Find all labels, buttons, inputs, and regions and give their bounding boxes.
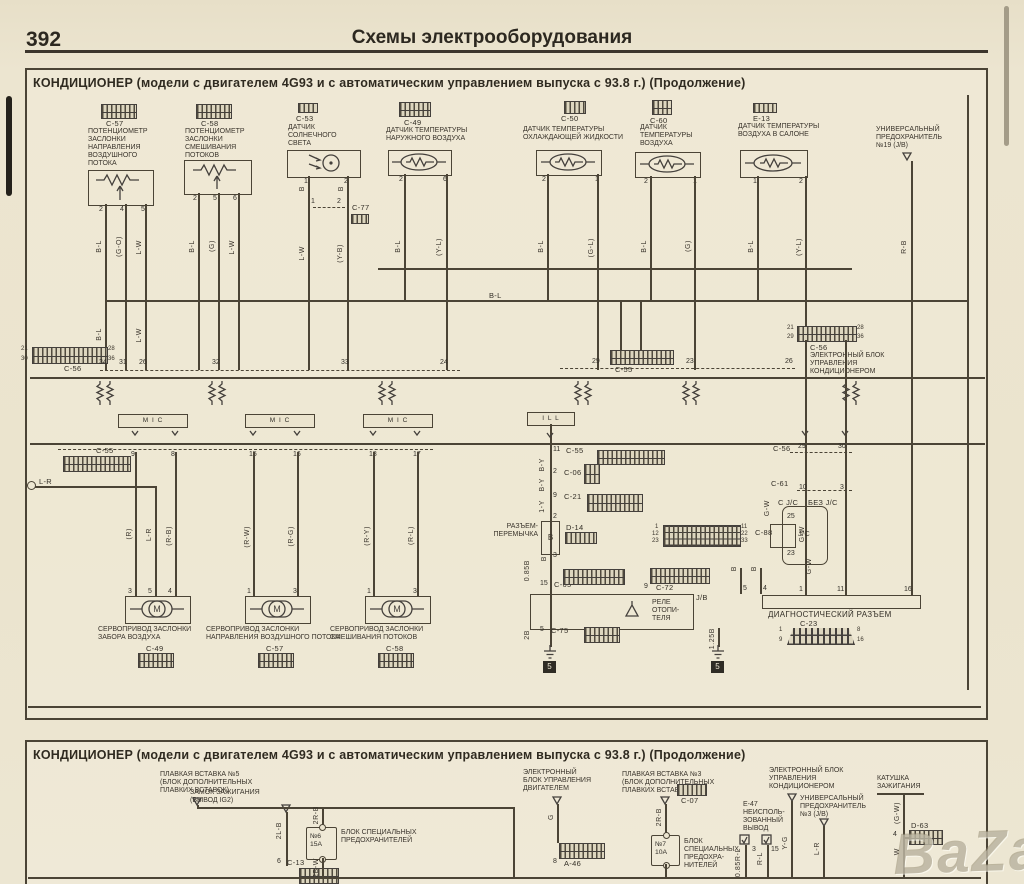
wire-color-label: B bbox=[541, 556, 548, 561]
pin-number: 29 bbox=[592, 358, 600, 365]
component-label: ПОТЕНЦИОМЕТР ЗАСЛОНКИ СМЕШИВАНИЯ ПОТОКОВ bbox=[185, 128, 255, 160]
wire-color-label: G-W bbox=[806, 558, 813, 574]
connector-pin-number: 28 bbox=[857, 325, 864, 331]
thermistor-icon bbox=[635, 152, 699, 176]
wire-color-label: B-L bbox=[538, 240, 545, 253]
connector-id: C-61 bbox=[771, 479, 788, 488]
wire-color-label: (R-B) bbox=[166, 526, 173, 546]
resistor-icon bbox=[376, 381, 400, 409]
connector-pin-number: 28 bbox=[108, 346, 115, 352]
connector-id: E-13 bbox=[753, 114, 770, 123]
pin-number: 1 bbox=[367, 588, 371, 595]
wire bbox=[767, 845, 769, 877]
wire-color-label: B bbox=[751, 566, 758, 571]
connector-icon bbox=[564, 101, 586, 114]
wire-color-label: 0.85R-L bbox=[735, 848, 742, 877]
wire bbox=[145, 204, 147, 370]
connector-pin-number: 1 bbox=[779, 627, 782, 633]
wire bbox=[557, 804, 559, 843]
connector-id: C-58 bbox=[386, 644, 403, 653]
diagnostic-connector-box bbox=[762, 595, 921, 609]
wire bbox=[197, 807, 513, 809]
connector-icon bbox=[101, 104, 137, 119]
component-label: ДАТЧИК ТЕМПЕРАТУРЫ ОХЛАЖДАЮЩЕЙ ЖИДКОСТИ bbox=[523, 126, 633, 142]
wire-color-label: 1-Y bbox=[539, 500, 546, 513]
wire-color-label: B-L bbox=[748, 240, 755, 253]
connector-pin-number: 22 bbox=[741, 531, 748, 537]
wire bbox=[417, 452, 419, 596]
watermark: BaZar bbox=[892, 815, 1024, 884]
jumper-label: РАЗЪЕМ- ПЕРЕМЫЧКА bbox=[478, 523, 538, 539]
wire bbox=[297, 452, 299, 596]
connector-icon bbox=[63, 456, 131, 472]
relay-icon bbox=[620, 600, 644, 620]
ground-icon bbox=[542, 645, 558, 661]
pin-number: 16 bbox=[904, 586, 912, 593]
connector-pin-number: 21 bbox=[787, 325, 794, 331]
wire-color-label: L-W bbox=[299, 246, 306, 261]
motor-icon: M bbox=[365, 596, 429, 622]
pin-number: 34 bbox=[99, 359, 107, 366]
pin-number: 2 bbox=[542, 176, 546, 183]
wire-color-label: (R-Y) bbox=[364, 526, 371, 546]
component-label: ДАТЧИК ТЕМПЕРАТУРЫ НАРУЖНОГО ВОЗДУХА bbox=[386, 127, 486, 143]
wire-color-label: B bbox=[299, 186, 306, 191]
connector-icon bbox=[753, 103, 777, 113]
connector-id: C-72 bbox=[656, 583, 673, 592]
jumper-box: В bbox=[541, 521, 560, 555]
connector-icon bbox=[138, 653, 174, 668]
connector-id: A-46 bbox=[564, 859, 581, 868]
wire-color-label: L-R bbox=[39, 477, 52, 486]
wire-color-label: 2L-B bbox=[276, 822, 283, 839]
potentiometer-icon bbox=[88, 170, 152, 204]
connector-boundary-dashed bbox=[560, 368, 795, 369]
connector-pin-number: 21 bbox=[21, 346, 28, 352]
wire-color-label: (Y-L) bbox=[436, 238, 443, 256]
connector-pin-number: 9 bbox=[779, 637, 782, 643]
junction-block-label: J/B bbox=[696, 593, 708, 602]
wire-color-label: L-W bbox=[136, 328, 143, 343]
connector-pin-number: 11 bbox=[741, 524, 747, 530]
wire bbox=[823, 826, 825, 877]
pin-number: 29 bbox=[798, 443, 806, 450]
connector-id: C-75 bbox=[551, 626, 568, 635]
pin-number: 8 bbox=[553, 858, 557, 865]
connector-pin-number: 36 bbox=[108, 356, 115, 362]
connector-id: D-14 bbox=[566, 523, 583, 532]
ground-icon bbox=[710, 645, 726, 661]
connector-boundary-dashed bbox=[58, 449, 433, 450]
pin-number: 15 bbox=[540, 580, 548, 587]
wire-color-label: G-W bbox=[799, 526, 806, 542]
wire-color-label: B-L bbox=[641, 240, 648, 253]
pin-number: 11 bbox=[837, 586, 844, 593]
connector-id: C-53 bbox=[296, 114, 313, 123]
label-underline bbox=[877, 793, 924, 795]
pin-number: 31 bbox=[119, 359, 127, 366]
wire bbox=[308, 176, 310, 370]
connector-icon bbox=[298, 103, 318, 113]
pin-number: 9 bbox=[553, 492, 557, 499]
wire-color-label: B-L bbox=[96, 328, 103, 341]
pin-number: 3 bbox=[553, 552, 557, 559]
component-label: СЕРВОПРИВОД ЗАСЛОНКИ ЗАБОРА ВОЗДУХА bbox=[98, 626, 223, 642]
connector-icon bbox=[378, 653, 414, 668]
wire bbox=[446, 174, 448, 370]
connector-icon bbox=[563, 569, 625, 585]
wire-color-label: Y-G bbox=[782, 836, 789, 850]
pin-number: 3 bbox=[293, 588, 297, 595]
connector-icon bbox=[258, 653, 294, 668]
connector-id: C-13 bbox=[287, 858, 304, 867]
connector-id: C-49 bbox=[146, 644, 163, 653]
wire bbox=[373, 452, 375, 596]
thermistor-icon bbox=[740, 150, 806, 176]
fuse-number: №7 bbox=[655, 841, 666, 848]
pin-number: 2 bbox=[553, 513, 557, 520]
connector-pin-number: 8 bbox=[857, 627, 860, 633]
connector-pin-number: 33 bbox=[741, 538, 748, 544]
connector-id: C-56 bbox=[810, 343, 827, 352]
pin-number: 3 bbox=[752, 846, 756, 853]
checkbox-icon bbox=[739, 834, 750, 845]
pin-number: 32 bbox=[212, 359, 220, 366]
resistor-icon bbox=[94, 381, 118, 409]
pin-number: 1 bbox=[247, 588, 251, 595]
component-label: E-47 НЕИСПОЛЬ- ЗОВАННЫЙ ВЫВОД bbox=[743, 801, 803, 833]
pin-number: 5 bbox=[540, 626, 544, 633]
fuse-box: №6 15A bbox=[306, 827, 337, 860]
connector-id: C-77 bbox=[352, 203, 369, 212]
connector-boundary-dashed bbox=[790, 452, 852, 453]
wire bbox=[745, 845, 747, 877]
component-label: ЭЛЕКТРОННЫЙ БЛОК УПРАВЛЕНИЯ КОНДИЦИОНЕРО… bbox=[769, 767, 859, 791]
motor-icon: M bbox=[245, 596, 309, 622]
connector-icon bbox=[610, 350, 674, 365]
wire bbox=[620, 302, 622, 351]
wire-color-label: B-L bbox=[395, 240, 402, 253]
mic-block: M I C bbox=[245, 414, 315, 428]
wire bbox=[513, 807, 515, 877]
relay-label: РЕЛЕ ОТОПИ- ТЕЛЯ bbox=[652, 599, 692, 623]
connector-pin-number: 12 bbox=[652, 531, 659, 537]
wire bbox=[238, 193, 240, 370]
connector-icon bbox=[584, 464, 600, 484]
connector-id: C-50 bbox=[561, 114, 578, 123]
arrow-down-icon bbox=[171, 430, 179, 436]
component-label: ЭЛЕКТРОННЫЙ БЛОК УПРАВЛЕНИЯ КОНДИЦИОНЕРО… bbox=[810, 352, 900, 376]
connector-icon bbox=[597, 450, 665, 465]
connector-id: C-56 bbox=[64, 364, 81, 373]
connector-icon bbox=[399, 102, 431, 117]
wire-color-label: B-L bbox=[189, 240, 196, 253]
resistor-icon bbox=[840, 381, 864, 409]
wire bbox=[198, 193, 200, 370]
wire-color-label: (G) bbox=[685, 240, 692, 252]
connector-icon bbox=[565, 532, 597, 544]
connector-id: C-56 bbox=[773, 444, 790, 453]
wire-color-label: (R-W) bbox=[244, 526, 251, 548]
wire bbox=[135, 452, 137, 596]
pin-number: 2 bbox=[553, 468, 557, 475]
bus-label: B-L bbox=[489, 291, 502, 300]
connector-icon bbox=[196, 104, 232, 119]
wire bbox=[640, 302, 642, 351]
pin-number: 24 bbox=[440, 359, 448, 366]
arrow-down-icon bbox=[413, 430, 421, 436]
ecu-boundary-line bbox=[30, 377, 985, 379]
mic-block: M I C bbox=[118, 414, 188, 428]
ground-ref-badge: 5 bbox=[543, 661, 556, 673]
joint-connector-box bbox=[770, 524, 796, 548]
wire bbox=[791, 801, 793, 877]
wire-color-label: 2B-W bbox=[313, 858, 320, 878]
motor-letter: M bbox=[273, 604, 281, 614]
pin-number: 9 bbox=[644, 583, 648, 590]
pin-number: 26 bbox=[785, 358, 793, 365]
wire bbox=[155, 486, 157, 596]
wire bbox=[322, 858, 324, 877]
connector-icon bbox=[663, 525, 741, 547]
wire-color-label: G-W bbox=[764, 500, 771, 516]
diagram-title-top: КОНДИЦИОНЕР (модели с двигателем 4G93 и … bbox=[33, 76, 745, 90]
pin-number: 23 bbox=[686, 358, 694, 365]
component-label: ДАТЧИК СОЛНЕЧНОГО СВЕТА bbox=[288, 124, 354, 148]
connector-id: C-49 bbox=[404, 118, 421, 127]
wire-color-label: 2B bbox=[524, 630, 531, 640]
pin-number: 26 bbox=[139, 359, 147, 366]
connector-pin-number: 16 bbox=[857, 637, 864, 643]
page-title: Схемы электрооборудования bbox=[0, 27, 984, 49]
wire bbox=[125, 204, 127, 370]
sun-sensor-icon bbox=[287, 150, 359, 176]
wire-dashed bbox=[313, 207, 345, 208]
wire bbox=[757, 176, 759, 301]
wire bbox=[694, 176, 696, 370]
motor-letter: M bbox=[153, 604, 161, 614]
pin-number: 3 bbox=[128, 588, 132, 595]
wire-color-label: L-R bbox=[814, 842, 821, 855]
wire bbox=[547, 174, 549, 301]
pin-number: 23 bbox=[787, 550, 795, 557]
connector-pin-number: 29 bbox=[787, 334, 794, 340]
connector-icon bbox=[787, 628, 855, 645]
wire-color-label: L-W bbox=[136, 240, 143, 255]
pin-number: 25 bbox=[787, 513, 795, 520]
wire bbox=[650, 176, 652, 301]
connector-pin-number: 1 bbox=[655, 524, 658, 530]
arrow-down-icon bbox=[293, 430, 301, 436]
pin-number: 2 bbox=[337, 198, 341, 205]
connector-id: C-57 bbox=[266, 644, 283, 653]
connector-id: C-55 bbox=[96, 446, 113, 455]
thermistor-icon bbox=[536, 150, 600, 174]
pin-number: 4 bbox=[763, 585, 767, 592]
connector-icon bbox=[559, 843, 605, 859]
wire-color-label: B-Y bbox=[539, 458, 546, 471]
wire bbox=[967, 95, 969, 690]
wire-color-label: R-L bbox=[757, 852, 764, 865]
pin-number: 5 bbox=[213, 195, 217, 202]
wire bbox=[347, 176, 349, 370]
wire-color-label: (Y-B) bbox=[337, 244, 344, 263]
pin-number: 1 bbox=[311, 198, 315, 205]
checkbox-icon bbox=[761, 834, 772, 845]
scan-edge-artifact bbox=[6, 96, 12, 196]
pin-number: 5 bbox=[743, 585, 747, 592]
connector-pin-number: 23 bbox=[652, 538, 659, 544]
connector-icon bbox=[584, 627, 620, 643]
component-label: ЭЛЕКТРОННЫЙ БЛОК УПРАВЛЕНИЯ ДВИГАТЕЛЕМ bbox=[523, 769, 613, 793]
resistor-icon bbox=[680, 381, 704, 409]
pin-number: 2 bbox=[399, 176, 403, 183]
pin-number: 3 bbox=[413, 588, 417, 595]
wire-color-label: B bbox=[731, 566, 738, 571]
connector-icon bbox=[587, 494, 643, 512]
wire-color-label: (R) bbox=[126, 528, 133, 540]
wire-color-label: B-L bbox=[96, 240, 103, 253]
wire bbox=[105, 204, 107, 370]
wire bbox=[740, 568, 742, 594]
connector-boundary-dashed bbox=[797, 490, 852, 491]
wire-color-label: L-W bbox=[229, 240, 236, 255]
fuse-box: №7 10A bbox=[651, 835, 680, 866]
connector-icon bbox=[650, 568, 710, 584]
connector-pin-number: 36 bbox=[857, 334, 864, 340]
connector-id: C-58 bbox=[201, 119, 218, 128]
wire-color-label: (R-G) bbox=[288, 526, 295, 547]
fuse-label: УНИВЕРСАЛЬНЫЙ ПРЕДОХРАНИТЕЛЬ №19 (J/B) bbox=[876, 126, 971, 150]
component-label: ПЛАВКАЯ ВСТАВКА №5 (БЛОК ДОПОЛНИТЕЛЬНЫХ … bbox=[160, 771, 270, 795]
wire bbox=[253, 452, 255, 596]
wire bbox=[597, 174, 599, 370]
pin-number: 1 bbox=[799, 586, 803, 593]
bus-wire bbox=[105, 300, 967, 302]
arrow-down-icon bbox=[131, 430, 139, 436]
pin-number: 2 bbox=[193, 195, 197, 202]
scanned-wiring-diagram-page: 392 Схемы электрооборудования КОНДИЦИОНЕ… bbox=[0, 0, 1024, 884]
wire bbox=[665, 864, 667, 877]
connector-pin-number: 30 bbox=[21, 356, 28, 362]
wire-color-label: R-B bbox=[901, 240, 908, 254]
component-label: ДАТЧИК ТЕМПЕРАТУРЫ ВОЗДУХА В САЛОНЕ bbox=[738, 123, 838, 139]
component-label: УНИВЕРСАЛЬНЫЙ ПРЕДОХРАНИТЕЛЬ №3 (J/B) bbox=[800, 795, 890, 819]
ground-ref-badge: 5 bbox=[711, 661, 724, 673]
connector-icon bbox=[677, 784, 707, 796]
scan-edge-artifact bbox=[1004, 6, 1009, 146]
wire bbox=[218, 193, 220, 370]
pin-number: 15 bbox=[771, 846, 779, 853]
connector-icon bbox=[351, 214, 369, 224]
wire bbox=[665, 804, 667, 835]
component-label: КАТУШКА ЗАЖИГАНИЯ bbox=[877, 775, 937, 791]
connector-icon bbox=[652, 100, 672, 115]
fuse-number: №6 bbox=[310, 833, 321, 840]
component-label: ДАТЧИК ТЕМПЕРАТУРЫ ВОЗДУХА bbox=[640, 124, 700, 148]
wire-color-label: (G-O) bbox=[116, 236, 123, 257]
pin-number: 5 bbox=[148, 588, 152, 595]
wire bbox=[28, 877, 981, 879]
component-label: БЛОК СПЕЦИАЛЬНЫХ ПРЕДОХРАНИТЕЛЕЙ bbox=[341, 829, 436, 845]
pin-number: 6 bbox=[277, 858, 281, 865]
panel-inner-rule bbox=[28, 706, 981, 708]
pin-number: 33 bbox=[341, 359, 349, 366]
wire-color-label: L-R bbox=[146, 528, 153, 541]
connector-boundary-dashed bbox=[100, 370, 460, 371]
connector-id: C-55 bbox=[615, 365, 632, 374]
connector-id: C-06 bbox=[564, 468, 581, 477]
pin-number: 30 bbox=[838, 443, 846, 450]
wire-color-label: B-Y bbox=[539, 478, 546, 491]
diagnostic-connector-label: ДИАГНОСТИЧЕСКИЙ РАЗЪЕМ bbox=[768, 610, 892, 619]
bus-wire bbox=[378, 268, 852, 270]
arrow-down-icon bbox=[546, 432, 554, 438]
pin-number: 2 bbox=[799, 178, 803, 185]
connector-id: С-23 bbox=[800, 619, 817, 628]
pin-number: 11 bbox=[553, 446, 560, 453]
wire bbox=[760, 568, 762, 594]
wire bbox=[35, 486, 155, 488]
resistor-icon bbox=[572, 381, 596, 409]
pin-number: 4 bbox=[168, 588, 172, 595]
wire bbox=[175, 452, 177, 596]
pin-number: 4 bbox=[120, 206, 124, 213]
wire bbox=[845, 340, 847, 596]
wire-color-label: G bbox=[548, 814, 555, 820]
connector-id: C-57 bbox=[106, 119, 123, 128]
thermistor-icon bbox=[388, 150, 450, 174]
motor-letter: M bbox=[393, 604, 401, 614]
motor-icon: M bbox=[125, 596, 189, 622]
wire-color-label: 0.85B bbox=[524, 560, 531, 581]
wire-color-label: B bbox=[338, 186, 345, 191]
wire bbox=[404, 174, 406, 301]
wire-color-label: (G) bbox=[209, 240, 216, 252]
wire bbox=[805, 176, 807, 327]
component-label: СЕРВОПРИВОД ЗАСЛОНКИ СМЕШИВАНИЯ ПОТОКОВ bbox=[330, 626, 470, 642]
connector-icon bbox=[32, 347, 108, 364]
connector-id: C-21 bbox=[564, 492, 581, 501]
arrow-down-icon bbox=[369, 430, 377, 436]
pin-number: 2 bbox=[644, 178, 648, 185]
wire-color-label: (G-L) bbox=[588, 238, 595, 257]
pin-number: 2 bbox=[99, 206, 103, 213]
header-rule bbox=[25, 50, 988, 53]
fuse-rating: 10A bbox=[655, 849, 667, 856]
wire-color-label: 2R-B bbox=[313, 806, 320, 824]
arrow-down-icon bbox=[249, 430, 257, 436]
wire-color-label: (Y-L) bbox=[796, 238, 803, 256]
mic-block: M I C bbox=[363, 414, 433, 428]
wire-color-label: 2R-B bbox=[656, 808, 663, 826]
component-label: ПОТЕНЦИОМЕТР ЗАСЛОНКИ НАПРАВЛЕНИЯ ВОЗДУШ… bbox=[88, 128, 160, 168]
pin-number: 6 bbox=[233, 195, 237, 202]
wire-color-label: (R-L) bbox=[408, 526, 415, 545]
potentiometer-icon bbox=[184, 160, 250, 193]
diagram-title-bottom: КОНДИЦИОНЕР (модели с двигателем 4G93 и … bbox=[33, 748, 745, 762]
connector-id: C-07 bbox=[681, 796, 698, 805]
fuse-rating: 15A bbox=[310, 841, 322, 848]
connector-id: C-55 bbox=[566, 446, 583, 455]
resistor-icon bbox=[206, 381, 230, 409]
